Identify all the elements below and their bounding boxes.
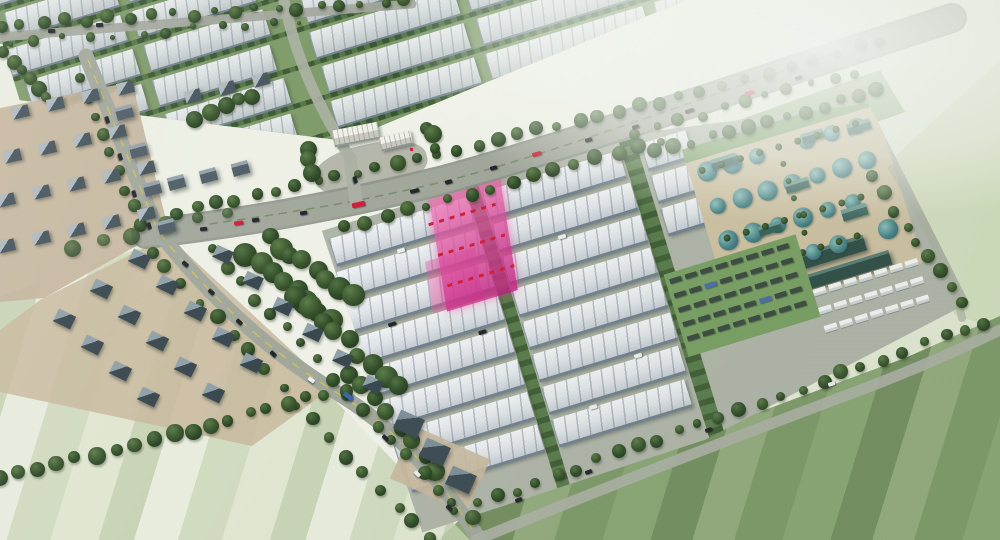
vehicle-car bbox=[685, 108, 695, 114]
vehicle-car bbox=[308, 376, 316, 383]
vehicle-car bbox=[446, 504, 453, 511]
vehicle-car bbox=[132, 190, 137, 198]
vehicle-car bbox=[105, 116, 110, 124]
vehicle-car bbox=[585, 469, 593, 475]
vehicle-bus bbox=[234, 220, 243, 225]
vehicle-car bbox=[252, 218, 259, 222]
vehicle-car bbox=[182, 260, 190, 267]
vehicle-car bbox=[382, 434, 389, 441]
vehicle-bus bbox=[532, 151, 542, 157]
vehicle-bus bbox=[745, 90, 755, 96]
vehicle-car bbox=[515, 497, 523, 503]
vehicle-car bbox=[147, 222, 152, 230]
vehicle-car bbox=[705, 427, 713, 433]
vehicle-car bbox=[118, 153, 123, 161]
vehicles-layer bbox=[0, 0, 1000, 540]
vehicle-car bbox=[585, 137, 593, 142]
vehicle-car bbox=[632, 124, 640, 129]
vehicle-car bbox=[48, 29, 55, 33]
vehicle-car bbox=[490, 165, 498, 170]
vehicle-car bbox=[200, 227, 207, 231]
vehicle-car bbox=[828, 381, 836, 386]
vehicle-car bbox=[208, 288, 216, 295]
vehicle-car bbox=[236, 318, 244, 325]
vehicle-car bbox=[445, 179, 453, 184]
vehicle-truck bbox=[343, 391, 355, 402]
aerial-masterplan-rendering bbox=[0, 0, 1000, 540]
vehicle-car bbox=[96, 23, 103, 27]
vehicle-car bbox=[414, 470, 421, 477]
vehicle-car bbox=[353, 176, 358, 184]
vehicle-bus bbox=[352, 201, 366, 209]
vehicle-car bbox=[300, 210, 308, 215]
vehicle-car bbox=[270, 350, 277, 357]
vehicle-car bbox=[795, 75, 803, 81]
vehicle-car bbox=[410, 188, 420, 194]
